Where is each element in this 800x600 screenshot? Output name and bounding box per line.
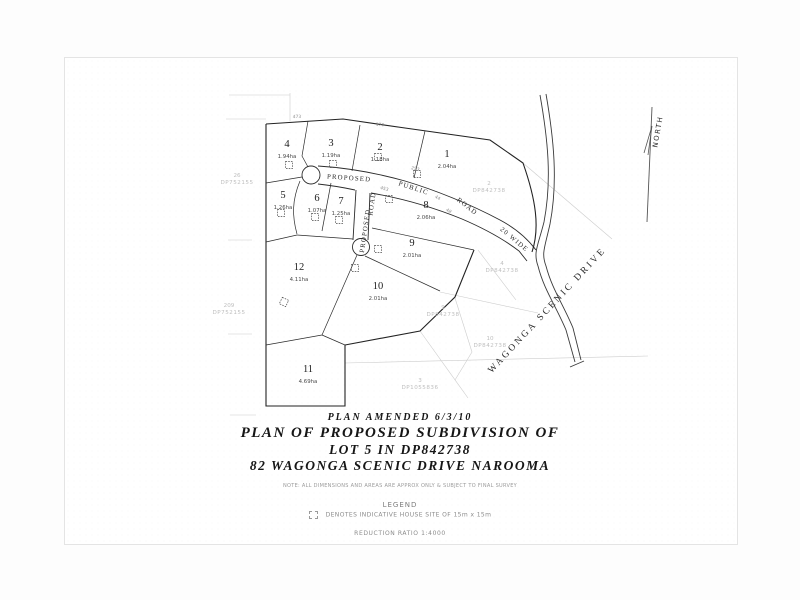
- lot-area: 4.11ha: [290, 277, 309, 283]
- road-label: PROPOSED: [327, 173, 372, 183]
- lot-area: 1.26ha: [274, 205, 293, 211]
- lot-number: 8: [423, 200, 428, 211]
- lot-area: 2.04ha: [438, 164, 457, 170]
- lot-number: 10: [373, 281, 384, 292]
- lot-area: 4.69ha: [299, 379, 318, 385]
- lot-area: 2.06ha: [417, 215, 436, 221]
- adjacent-dp-number: DP752155: [220, 180, 253, 186]
- legend-block: LEGEND DENOTES INDICATIVE HOUSE SITE OF …: [0, 501, 800, 537]
- lot-number: 1: [444, 149, 449, 160]
- adjacent-dp-number: DP842738: [426, 312, 459, 318]
- adjacent-lot-number: 209: [224, 303, 235, 309]
- scanned-plan-sheet: NORTH WAGONGA SCENIC DRIVE 26DP752155209…: [0, 0, 800, 600]
- plan-title-line1: PLAN OF PROPOSED SUBDIVISION OF: [0, 425, 800, 442]
- street-name-label: WAGONGA SCENIC DRIVE: [487, 246, 609, 376]
- lot-area: 2.01ha: [369, 296, 388, 302]
- adjacent-dp-number: DP842738: [485, 268, 518, 274]
- road-label: PUBLIC: [397, 180, 429, 196]
- house-site-square: [286, 162, 293, 169]
- road-label: ROAD: [455, 197, 478, 217]
- legend-item-text: DENOTES INDICATIVE HOUSE SITE OF 15m x 1…: [326, 512, 492, 519]
- lot-area: 1.07ha: [308, 208, 327, 214]
- house-site-square: [330, 161, 337, 168]
- boundary-dimension: 453: [379, 185, 389, 193]
- north-label: NORTH: [651, 115, 664, 148]
- adjacent-lot-number: 2: [487, 181, 491, 187]
- lot-area: 1.25ha: [332, 211, 351, 217]
- house-site-square: [375, 246, 382, 253]
- reduction-ratio-label: REDUCTION RATIO 1:4000: [0, 530, 800, 537]
- adjacent-dp-number: DP842738: [473, 343, 506, 349]
- adjacent-dp-number: DP1055836: [401, 385, 438, 391]
- plan-amended-note: PLAN AMENDED 6/3/10: [0, 412, 800, 423]
- lot-number: 9: [409, 238, 414, 249]
- adjacent-lot-number: 9: [441, 305, 445, 311]
- title-block: PLAN AMENDED 6/3/10 PLAN OF PROPOSED SUB…: [0, 412, 800, 489]
- house-site-square: [312, 214, 319, 221]
- lot-area: 1.19ha: [322, 153, 341, 159]
- adjacent-lot-number: 26: [233, 173, 241, 179]
- wagonga-scenic-drive-road: [536, 94, 584, 367]
- north-arrow: NORTH: [644, 107, 665, 222]
- house-site-square: [279, 297, 288, 306]
- lot-number: 7: [338, 196, 343, 207]
- boundary-dimension: 44: [434, 194, 442, 202]
- house-site-square: [336, 217, 343, 224]
- lot-number: 3: [328, 138, 333, 149]
- lot-labels: 12.04ha21.18ha31.19ha41.94ha51.26ha61.07…: [274, 138, 457, 385]
- lot-number: 12: [294, 262, 305, 273]
- lot-number: 4: [284, 139, 290, 150]
- plan-title-line2: LOT 5 IN DP842738: [0, 442, 800, 458]
- lot-area: 1.18ha: [371, 157, 390, 163]
- boundary-dimension: 473: [293, 114, 302, 120]
- survey-disclaimer-note: NOTE: ALL DIMENSIONS AND AREAS ARE APPRO…: [0, 483, 800, 489]
- boundary-dimension: 170: [376, 122, 385, 129]
- road-label: PROPOSED: [359, 208, 372, 253]
- lot-number: 11: [303, 364, 313, 375]
- lot-number: 2: [377, 142, 382, 153]
- boundary-dimension: 253: [410, 165, 420, 173]
- house-site-symbol-icon: [309, 511, 318, 519]
- adjacent-dp-number: DP752155: [212, 310, 245, 316]
- lot-number: 5: [280, 190, 285, 201]
- adjacent-lot-number: 10: [486, 336, 494, 342]
- legend-heading: LEGEND: [0, 501, 800, 509]
- cul-de-sac-bulb-west: [302, 166, 320, 184]
- plan-title-line3: 82 WAGONGA SCENIC DRIVE NAROOMA: [0, 458, 800, 474]
- lot-area: 2.01ha: [403, 253, 422, 259]
- legend-item: DENOTES INDICATIVE HOUSE SITE OF 15m x 1…: [0, 511, 800, 519]
- lot-number: 6: [314, 193, 319, 204]
- adjacent-lot-number: 3: [418, 378, 422, 384]
- adjacent-lot-number: 4: [500, 261, 504, 267]
- boundary-dimension: 48: [445, 207, 453, 215]
- adjacent-dp-number: DP842738: [472, 188, 505, 194]
- lot-area: 1.94ha: [278, 154, 297, 160]
